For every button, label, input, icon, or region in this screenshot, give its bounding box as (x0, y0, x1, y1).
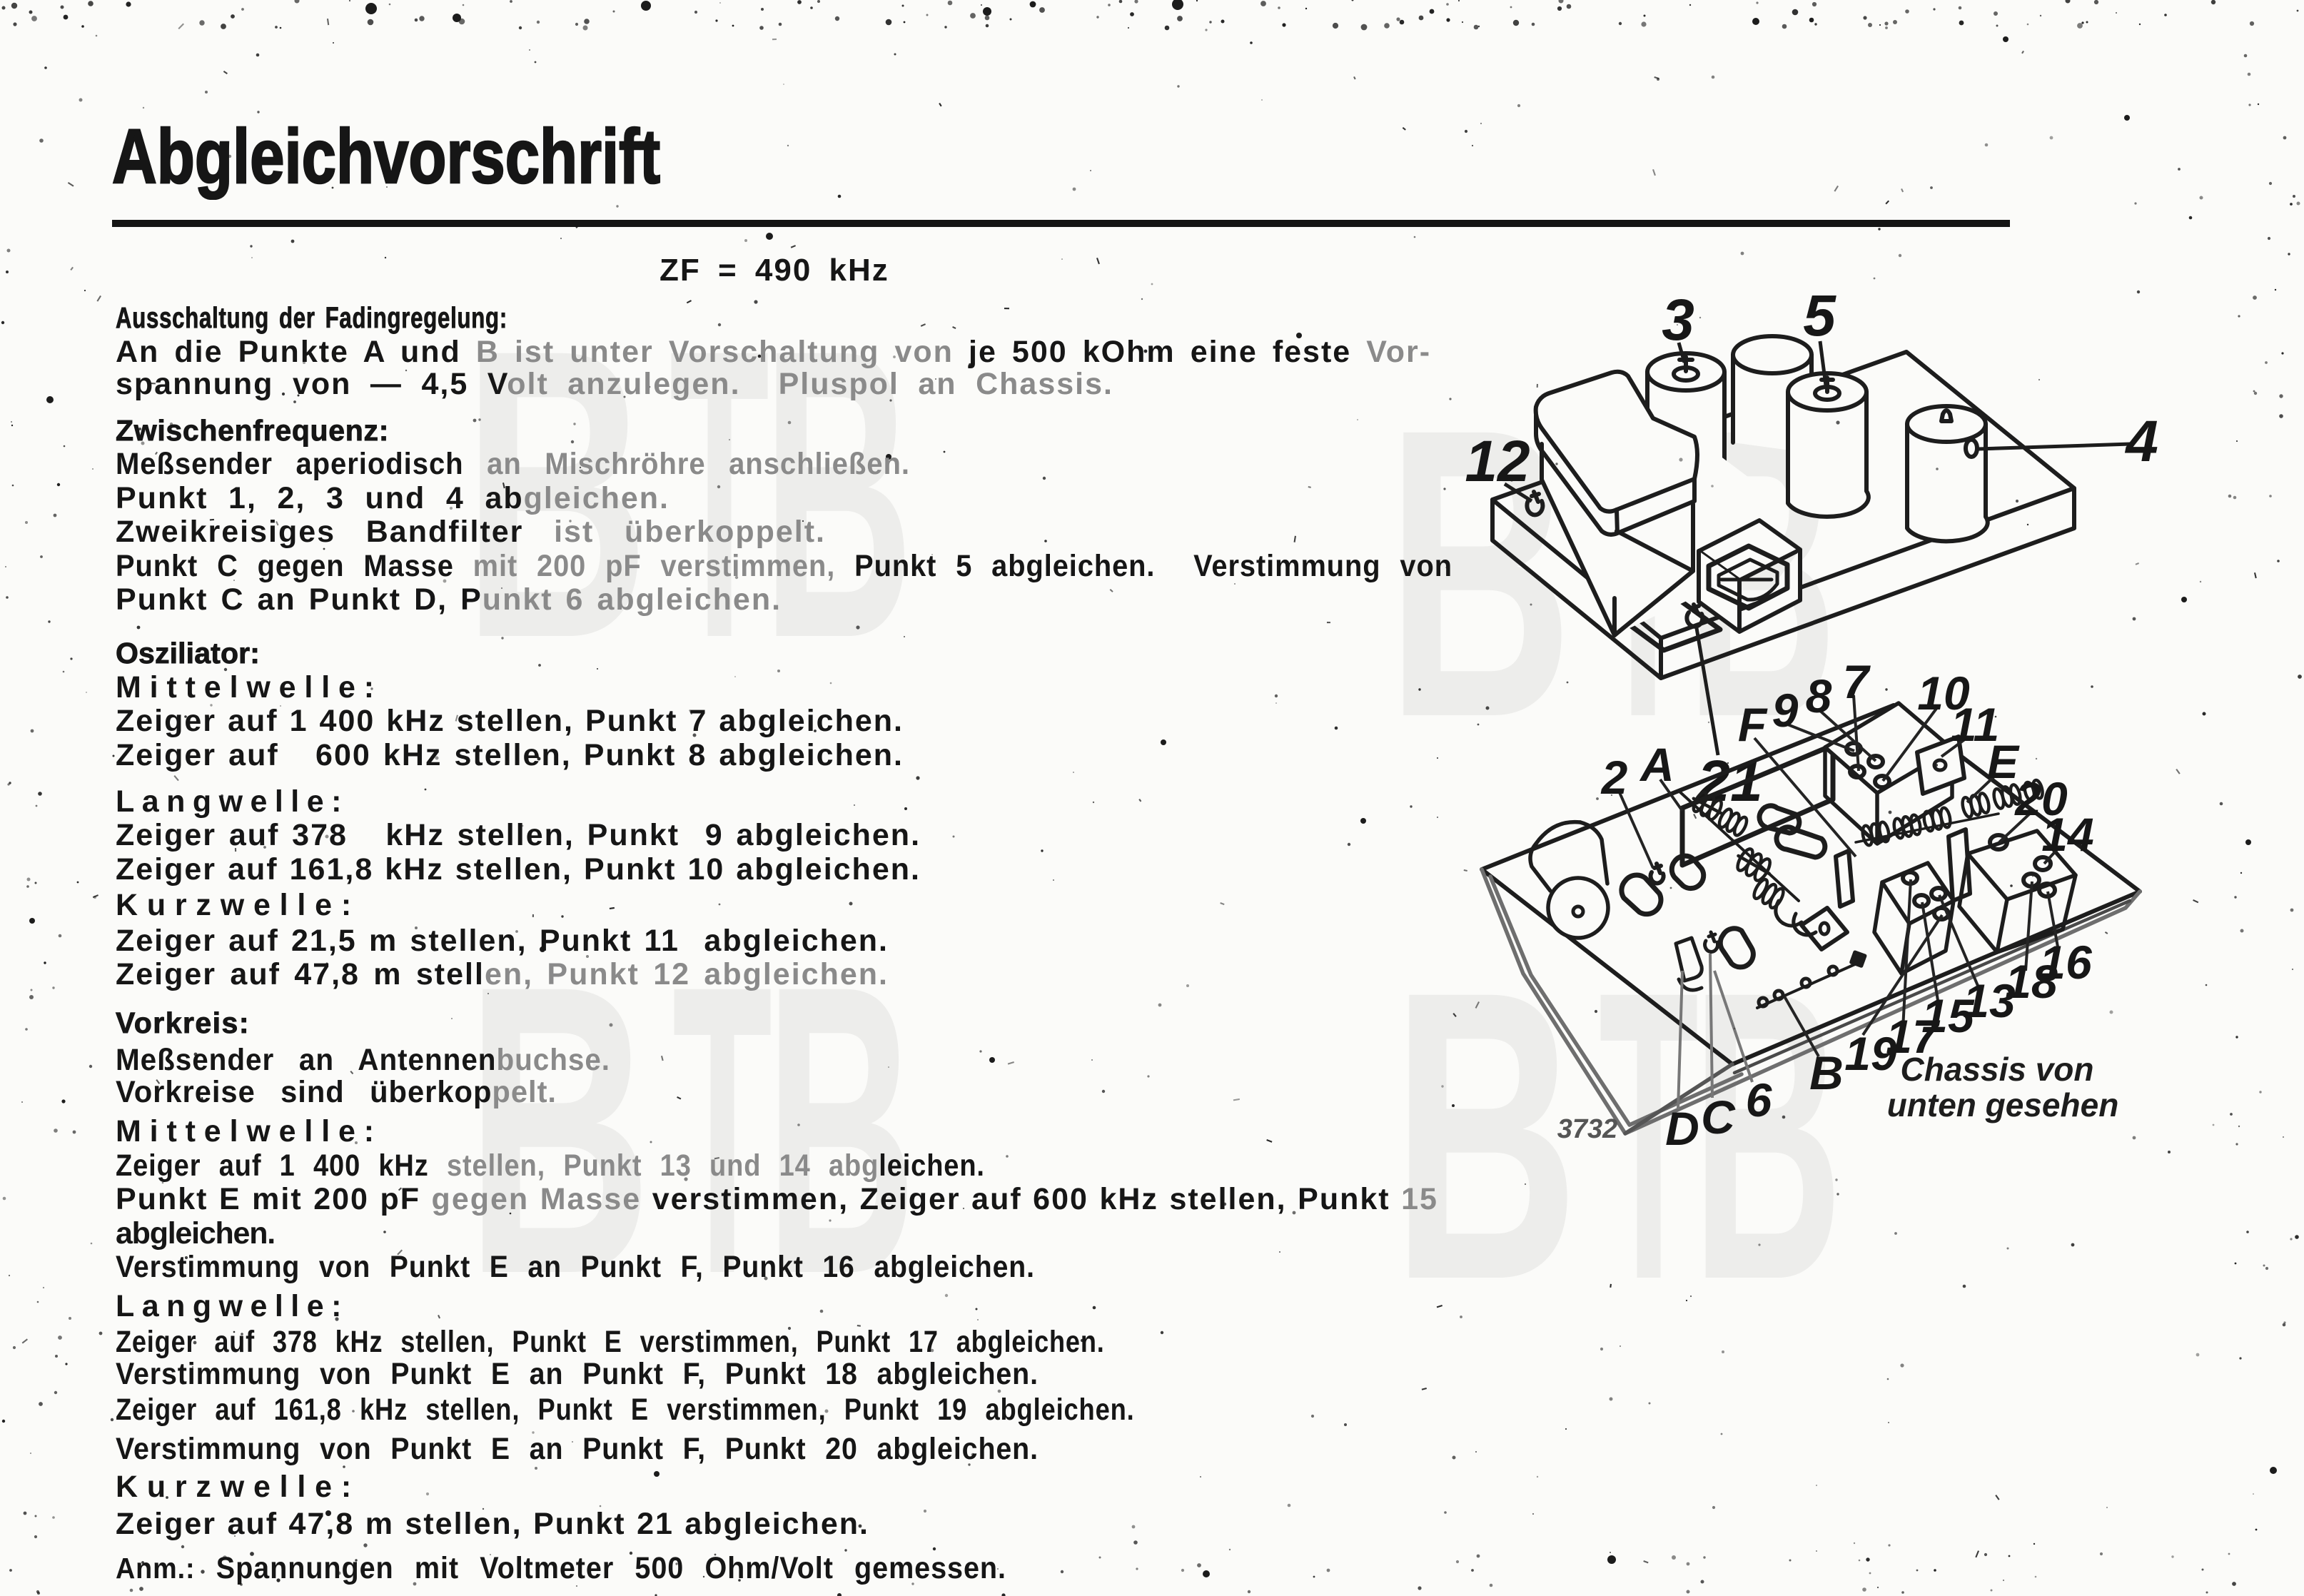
svg-text:B: B (1809, 1046, 1844, 1099)
svg-text:12: 12 (1465, 429, 1530, 494)
svg-text:3: 3 (1662, 288, 1694, 353)
svg-text:unten gesehen: unten gesehen (1887, 1086, 2119, 1123)
svg-text:7: 7 (1843, 655, 1871, 708)
svg-text:6: 6 (1746, 1074, 1773, 1126)
svg-text:A: A (1639, 738, 1674, 791)
svg-text:F: F (1738, 698, 1768, 751)
svg-text:9: 9 (1772, 684, 1799, 737)
svg-text:14: 14 (2041, 808, 2093, 861)
svg-text:3732: 3732 (1557, 1114, 1618, 1144)
svg-text:Chassis von: Chassis von (1901, 1051, 2094, 1088)
svg-text:19: 19 (1844, 1027, 1897, 1080)
svg-text:4: 4 (2124, 409, 2158, 474)
svg-text:5: 5 (1803, 283, 1836, 348)
svg-text:D: D (1665, 1102, 1699, 1155)
svg-text:8: 8 (1806, 670, 1832, 722)
svg-text:C: C (1701, 1091, 1736, 1143)
svg-text:2: 2 (1600, 751, 1628, 804)
